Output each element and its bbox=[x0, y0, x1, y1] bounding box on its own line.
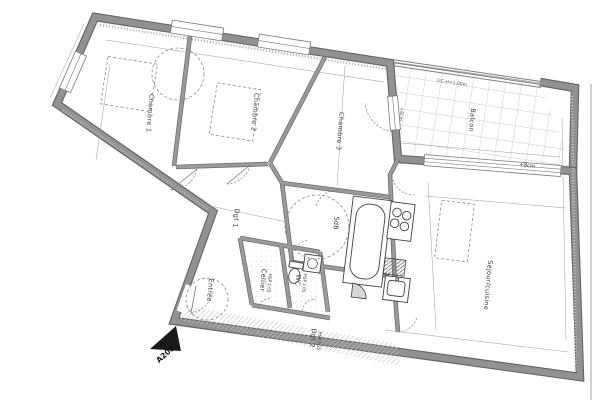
washer bbox=[303, 254, 322, 273]
balcony bbox=[392, 60, 575, 171]
balcony-tiles bbox=[393, 62, 574, 169]
room-label-dgt2: Dgt 2 bbox=[308, 328, 318, 348]
under-counter-appliance bbox=[383, 258, 406, 276]
stove bbox=[387, 202, 415, 242]
floorplan-sheet: Chambre 1 Chambre 2 Chambre 3 Balcon Séj… bbox=[0, 0, 600, 400]
floorplan-drawing: Chambre 1 Chambre 2 Chambre 3 Balcon Séj… bbox=[0, 0, 600, 400]
room-label-wc: WC bbox=[293, 274, 302, 286]
room-label-dgt1: Dgt 1 bbox=[231, 208, 241, 228]
room-label-sdb: SdB bbox=[331, 216, 340, 230]
kitchen-sink bbox=[383, 276, 411, 303]
annotation-level-offset-door: +8cm bbox=[397, 107, 404, 122]
